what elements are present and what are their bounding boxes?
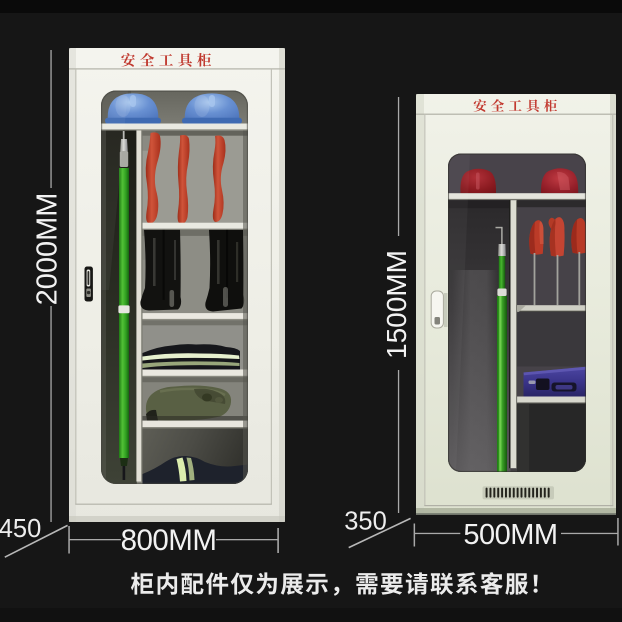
svg-text:1500MM: 1500MM [381, 250, 412, 359]
svg-text:2000MM: 2000MM [32, 193, 64, 306]
svg-text:800MM: 800MM [121, 524, 217, 557]
svg-text:350: 350 [344, 508, 387, 536]
svg-text:450: 450 [0, 515, 41, 543]
svg-text:500MM: 500MM [463, 519, 557, 551]
